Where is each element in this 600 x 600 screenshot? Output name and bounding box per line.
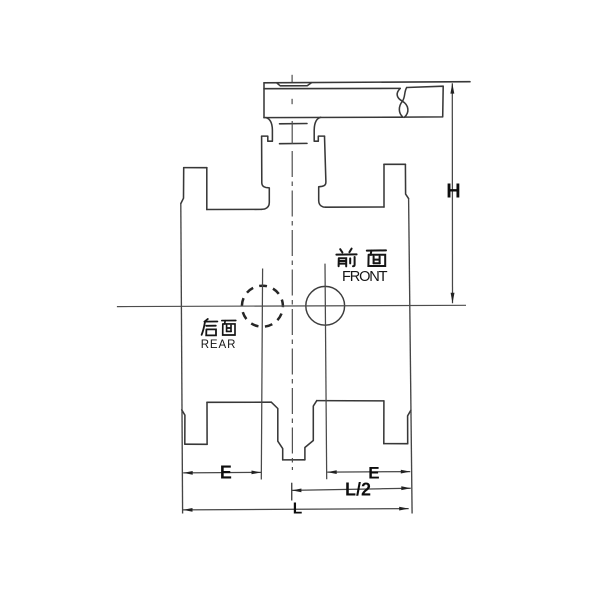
svg-text:FRONT: FRONT — [342, 269, 388, 285]
svg-text:L/2: L/2 — [345, 480, 371, 500]
svg-text:H: H — [446, 181, 460, 203]
svg-text:E: E — [220, 463, 232, 483]
svg-text:L: L — [293, 500, 302, 517]
svg-text:REAR: REAR — [201, 339, 237, 351]
